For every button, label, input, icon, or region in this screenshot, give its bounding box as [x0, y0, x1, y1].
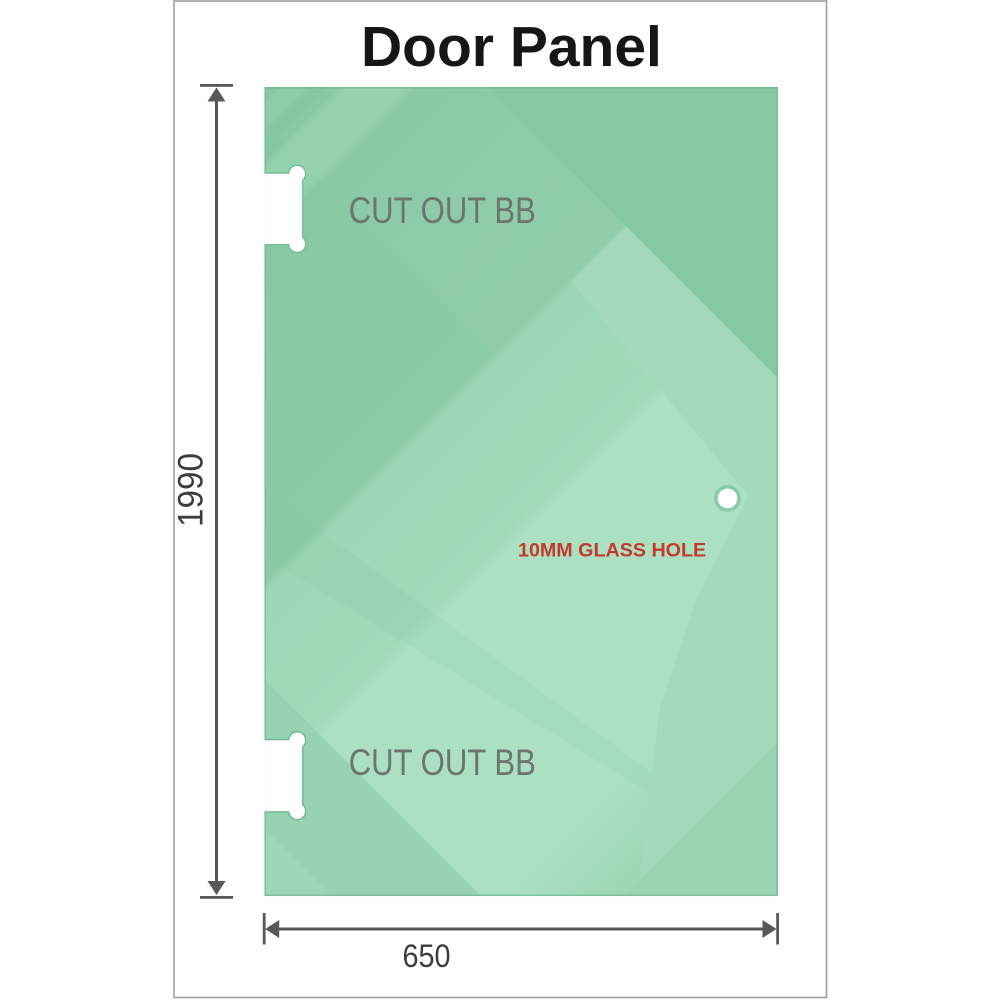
svg-text:CUT OUT BB: CUT OUT BB [349, 190, 536, 231]
svg-text:650: 650 [403, 939, 451, 975]
svg-text:10MM GLASS HOLE: 10MM GLASS HOLE [518, 540, 706, 562]
svg-text:CUT OUT BB: CUT OUT BB [349, 742, 536, 783]
svg-text:1990: 1990 [172, 453, 211, 527]
svg-text:Door Panel: Door Panel [361, 15, 662, 79]
